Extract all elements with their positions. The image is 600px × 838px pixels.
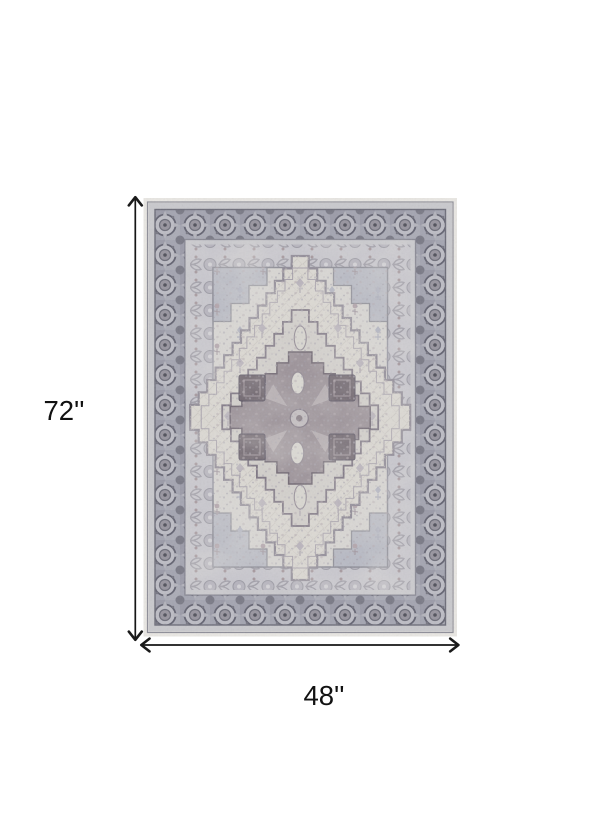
svg-text:48'': 48'' (303, 680, 344, 711)
svg-text:72'': 72'' (43, 395, 84, 426)
